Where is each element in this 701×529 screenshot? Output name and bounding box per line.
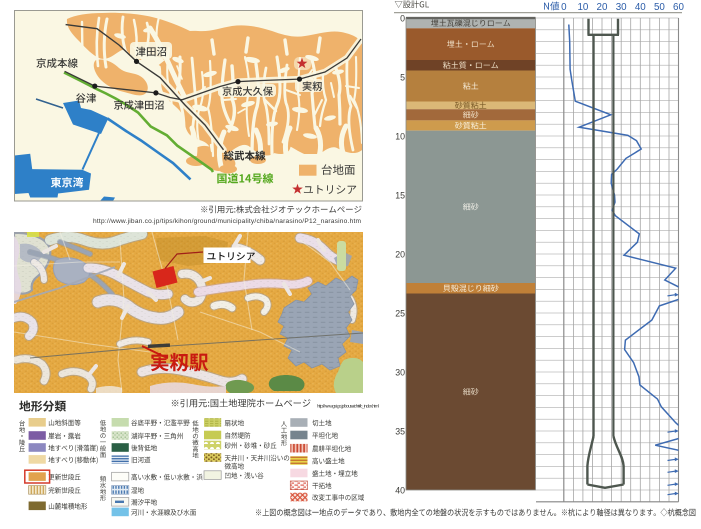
svg-text:30: 30 xyxy=(616,2,627,13)
svg-text:20: 20 xyxy=(395,249,405,259)
svg-text:0: 0 xyxy=(561,2,567,13)
svg-text:20: 20 xyxy=(597,2,608,13)
svg-text:40: 40 xyxy=(635,2,646,13)
svg-text:35: 35 xyxy=(395,426,405,436)
svg-text:30: 30 xyxy=(395,367,405,377)
svg-text:50: 50 xyxy=(654,2,665,13)
svg-text:10: 10 xyxy=(395,131,405,141)
svg-text:10: 10 xyxy=(577,2,588,13)
svg-text:25: 25 xyxy=(395,308,405,318)
svg-text:60: 60 xyxy=(673,2,684,13)
svg-text:0: 0 xyxy=(400,13,405,23)
svg-text:http://www.jiban.co.jp/tips/ki: http://www.jiban.co.jp/tips/kihon/ground… xyxy=(93,218,362,225)
svg-text:15: 15 xyxy=(395,190,405,200)
svg-text:http://www.gsi.go.jp/bousaichi: http://www.gsi.go.jp/bousaichiri/lc_inde… xyxy=(317,404,379,409)
svg-text:5: 5 xyxy=(400,72,405,82)
svg-text:40: 40 xyxy=(395,485,405,495)
